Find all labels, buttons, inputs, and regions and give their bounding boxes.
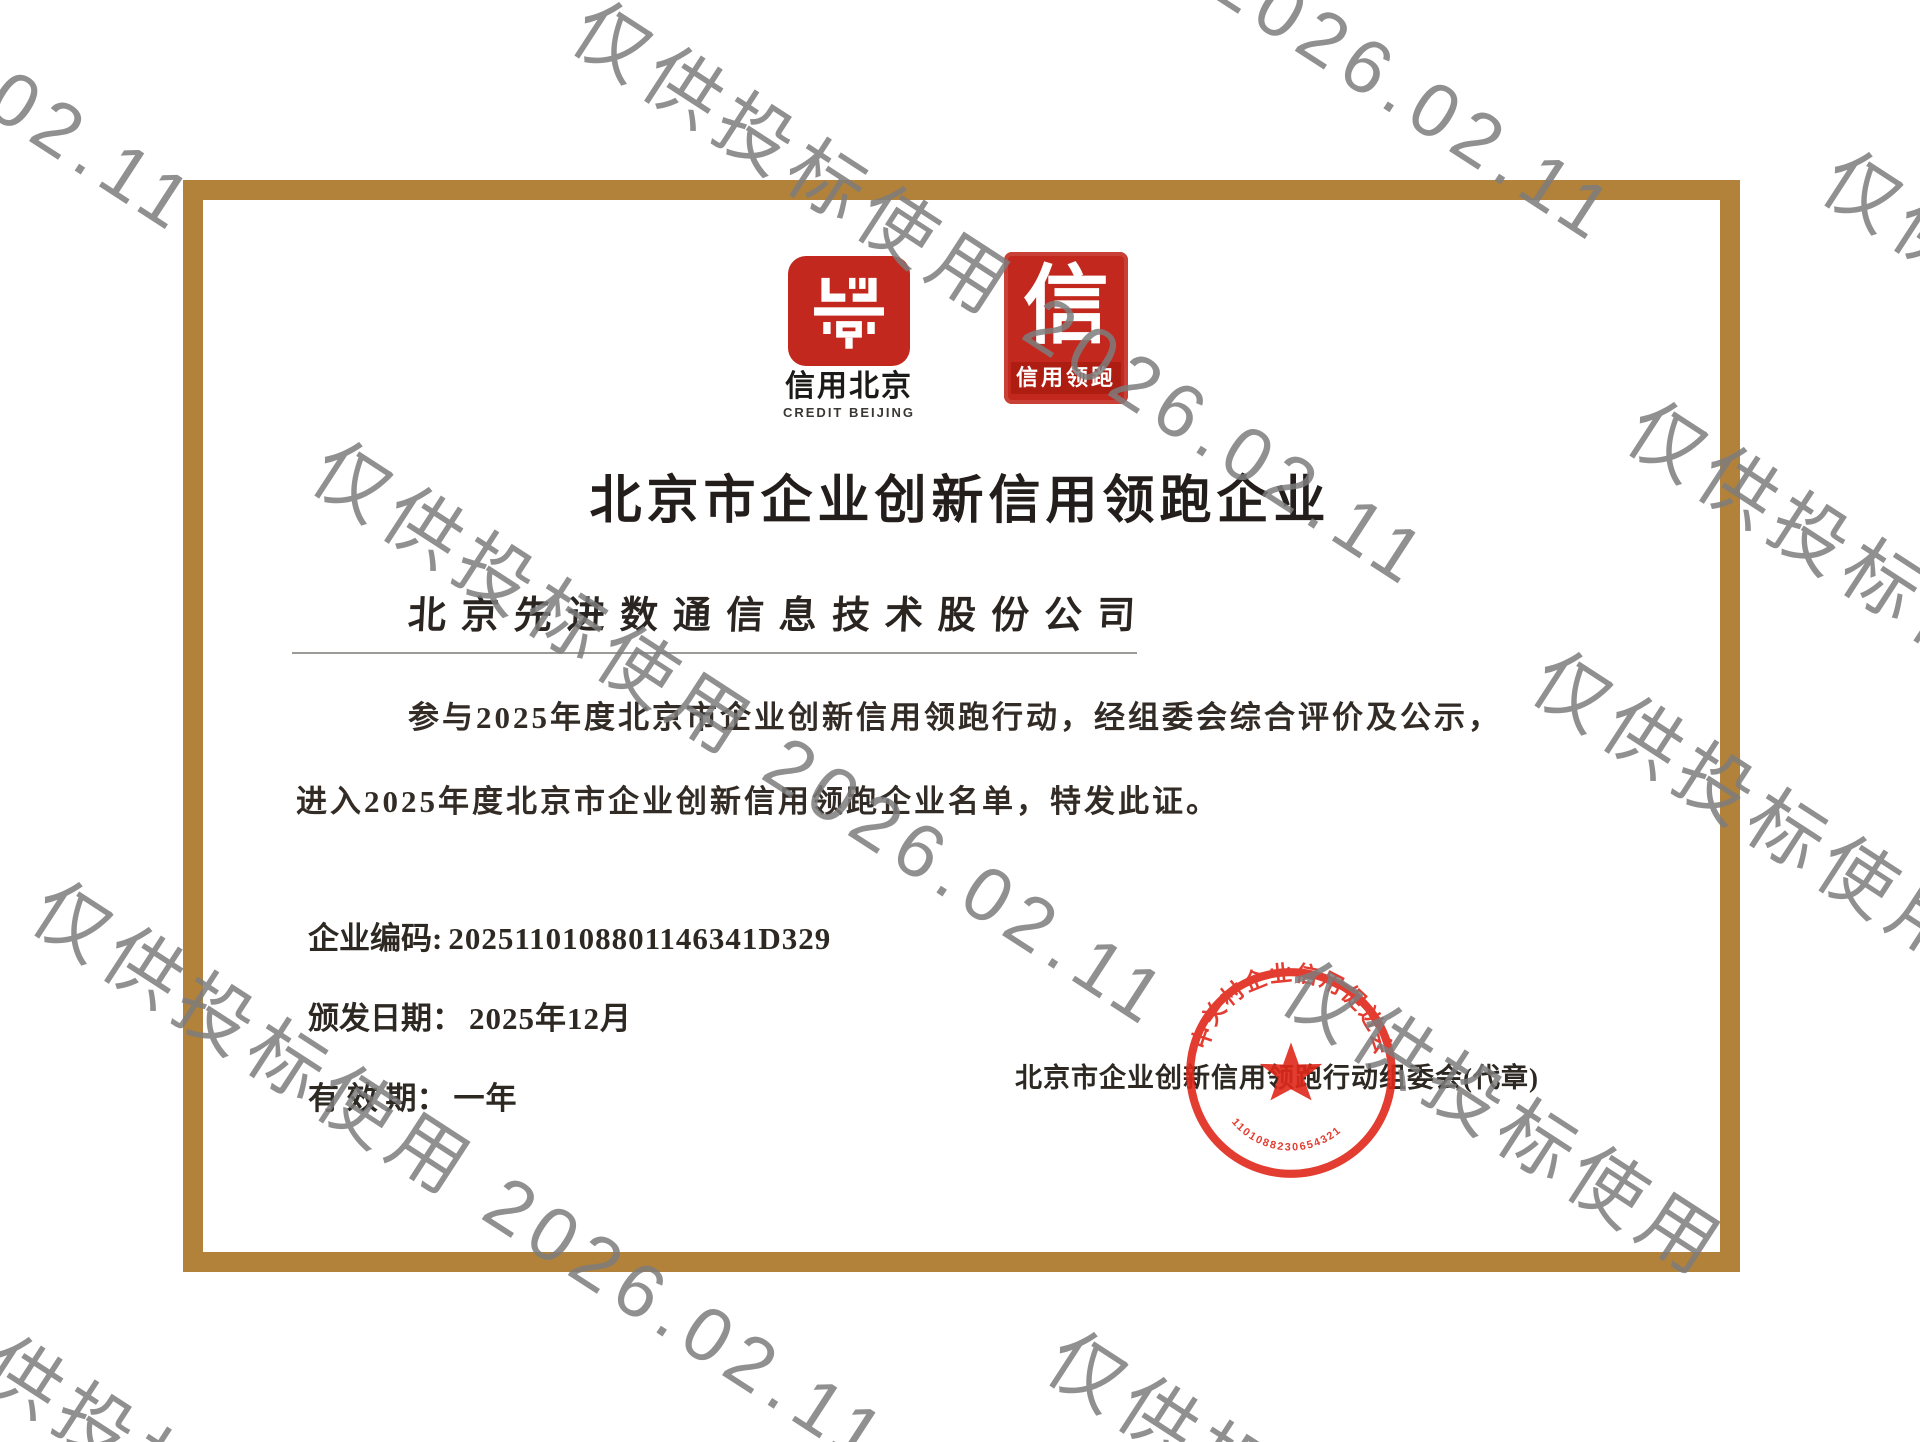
watermark: 仅供投标使用 bbox=[0, 1280, 368, 1442]
credit-beijing-caption: 信用北京 bbox=[768, 372, 930, 402]
svg-text:1101088230654321: 1101088230654321 bbox=[1229, 1116, 1344, 1153]
official-seal-stamp: 中关村企业信用促进会 1101088230654321 bbox=[1156, 938, 1426, 1208]
enterprise-code-label: 企业编码: bbox=[308, 920, 442, 957]
seal-star-icon bbox=[1260, 1042, 1323, 1100]
company-name: 北京先进数通信息技术股份公司 bbox=[407, 594, 1151, 640]
seal-code-text: 1101088230654321 bbox=[1229, 1116, 1344, 1153]
certificate-title: 北京市企业创新信用领跑企业 bbox=[0, 472, 1920, 532]
certificate-page: 信用北京 CREDIT BEIJING 信 信用领跑 北京市企业创新信用领跑企业… bbox=[0, 0, 1920, 1442]
credit-leading-logo: 信 信用领跑 bbox=[1004, 252, 1128, 404]
body-text-line1: 参与2025年度北京市企业创新信用领跑行动，经组委会综合评价及公示， bbox=[408, 698, 1502, 738]
validity-value: 一年 bbox=[454, 1080, 518, 1117]
issue-date-label: 颁发日期： bbox=[308, 1000, 463, 1037]
credit-leading-band: 信用领跑 bbox=[1011, 362, 1121, 394]
watermark: 仅供投标使用 bbox=[1809, 140, 1920, 482]
credit-beijing-caption-en: CREDIT BEIJING bbox=[768, 406, 930, 419]
validity-label: 有 效 期： bbox=[308, 1080, 448, 1117]
body-text-line2: 进入2025年度北京市企业创新信用领跑企业名单，特发此证。 bbox=[296, 782, 1220, 822]
validity-row: 有 效 期： 一年 bbox=[308, 1080, 518, 1117]
enterprise-code-value: 2025110108801146341D329 bbox=[448, 920, 831, 957]
enterprise-code-row: 企业编码: 2025110108801146341D329 bbox=[308, 920, 831, 957]
seal-arc-text: 中关村企业信用促进会 bbox=[1187, 960, 1397, 1059]
watermark: 仅供投标使用 bbox=[1034, 1320, 1503, 1442]
company-underline bbox=[292, 652, 1137, 654]
svg-text:中关村企业信用促进会: 中关村企业信用促进会 bbox=[1187, 960, 1397, 1059]
credit-beijing-mark-icon bbox=[801, 265, 897, 357]
watermark: 2026.02.11 bbox=[0, 0, 210, 247]
credit-leading-glyph-icon: 信 bbox=[1004, 254, 1128, 358]
credit-beijing-logo bbox=[788, 256, 910, 366]
issue-date-value: 2025年12月 bbox=[469, 1000, 632, 1037]
issue-date-row: 颁发日期： 2025年12月 bbox=[308, 1000, 632, 1037]
